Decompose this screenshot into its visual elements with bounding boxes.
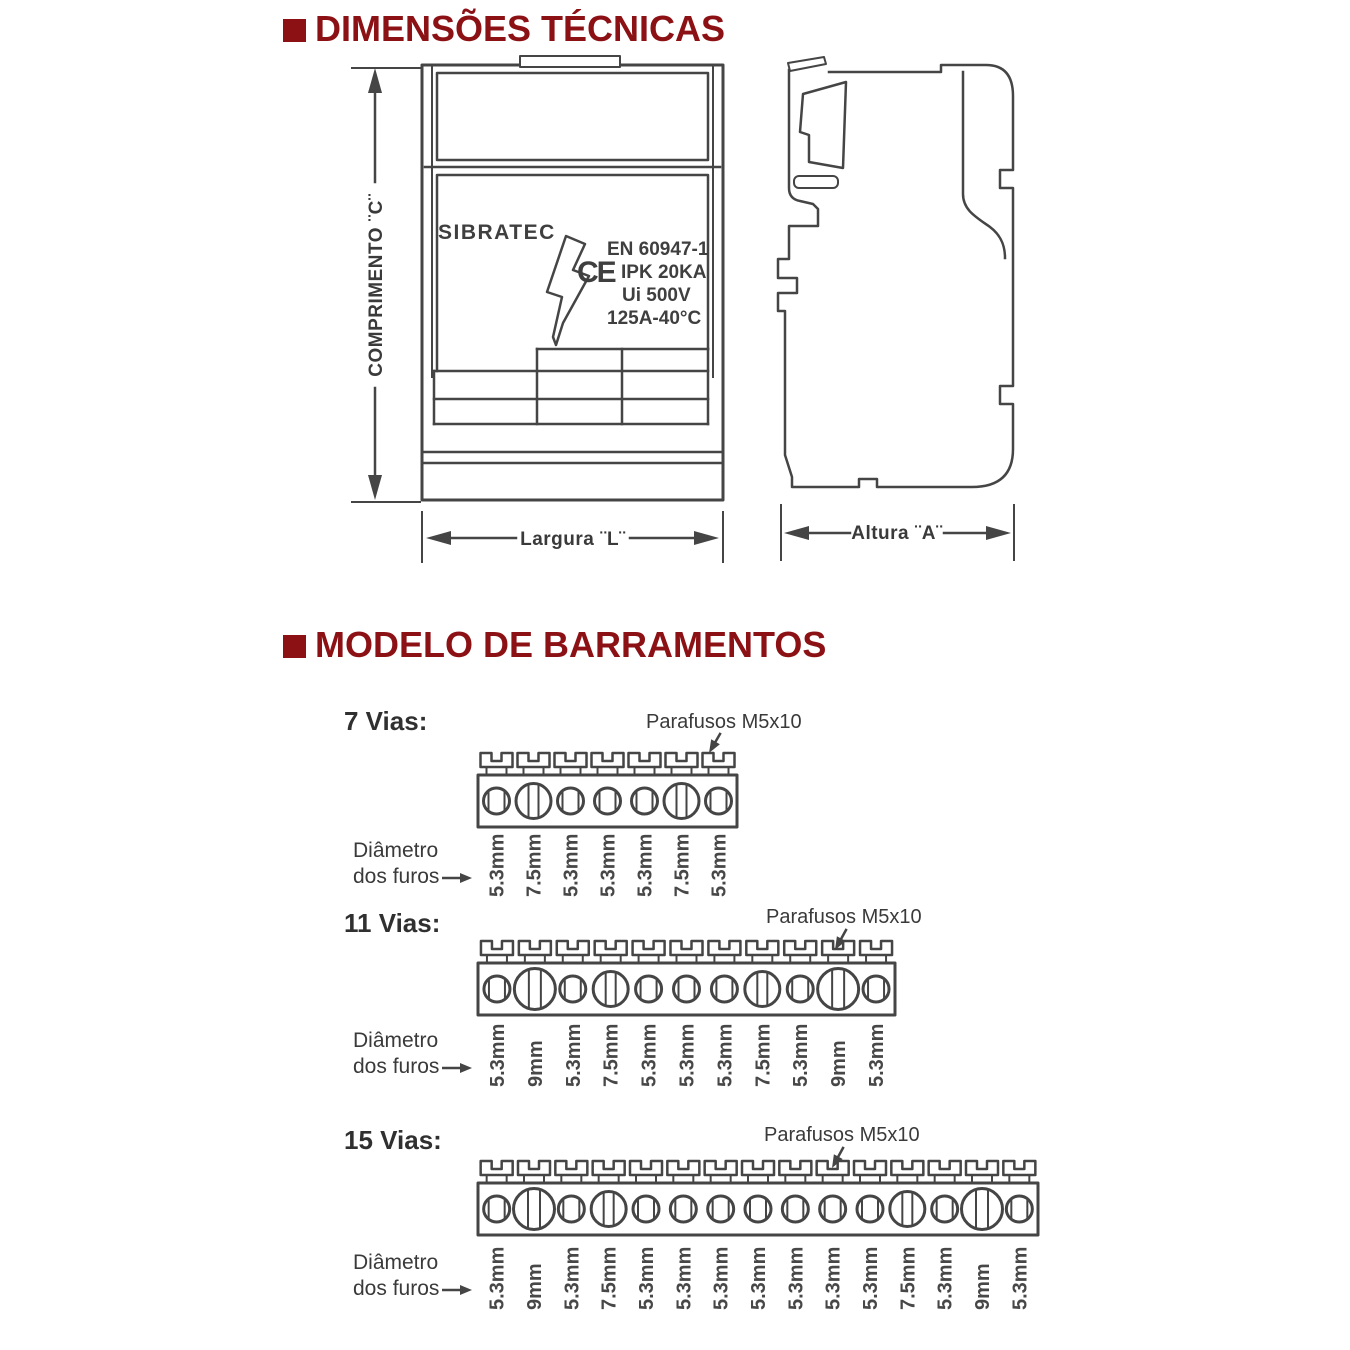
section-header-dimensions: DIMENSÕES TÉCNICAS xyxy=(283,8,725,50)
screw-head-icon xyxy=(481,1161,513,1175)
arrow-down-icon xyxy=(368,475,382,500)
hole-diameter-label: 5.3mm xyxy=(561,1247,583,1310)
hole-diameter-label: 7.5mm xyxy=(599,1247,621,1310)
hole-diameter-label: 5.3mm xyxy=(823,1247,845,1310)
busbar-hole xyxy=(863,976,889,1002)
diameter-caption-line2: dos furos xyxy=(353,1054,472,1080)
busbar-hole xyxy=(670,1196,696,1222)
screw-head-icon xyxy=(854,1161,886,1175)
hole-diameter-label: 5.3mm xyxy=(598,834,620,897)
diameter-caption: Diâmetro dos furos xyxy=(353,838,472,890)
screw-head-icon xyxy=(742,1161,774,1175)
section-title-barramentos: MODELO DE BARRAMENTOS xyxy=(315,624,826,666)
hole-diameter-label: 5.3mm xyxy=(711,1247,733,1310)
hole-diameter-label: 5.3mm xyxy=(673,1247,695,1310)
sibratec-logo: SIBRATEC xyxy=(438,221,556,245)
screw-head-icon xyxy=(703,753,735,767)
hole-diameter-label: 5.3mm xyxy=(709,834,731,897)
screw-head-icon xyxy=(779,1161,811,1175)
busbar-hole xyxy=(591,1192,626,1227)
hole-diameter-label: 5.3mm xyxy=(790,1024,812,1087)
busbar-hole xyxy=(857,1196,883,1222)
screw-head-icon xyxy=(667,1161,699,1175)
hole-diameter-label: 5.3mm xyxy=(635,834,657,897)
diameter-caption: Diâmetro dos furos xyxy=(353,1250,472,1302)
side-inner-wall-curve xyxy=(963,72,1005,258)
front-terminal-grid xyxy=(434,349,708,424)
arrow-right-icon xyxy=(442,870,472,884)
model-label-11-vias: 11 Vias: xyxy=(344,908,440,939)
hole-diameter-label: 5.3mm xyxy=(714,1024,736,1087)
hole-diameter-label: 7.5mm xyxy=(897,1247,919,1310)
hole-diameter-label: 9mm xyxy=(525,1040,547,1087)
screws-label: Parafusos M5x10 xyxy=(766,906,922,929)
hole-diameter-label: 7.5mm xyxy=(752,1024,774,1087)
hole-diameter-label: 5.3mm xyxy=(860,1247,882,1310)
bullet-square-icon xyxy=(283,635,306,658)
arrow-right-icon xyxy=(442,1060,472,1074)
screw-head-icon xyxy=(708,941,740,955)
cert-line: IPK 20KA xyxy=(607,261,708,284)
certification-text: EN 60947-1 IPK 20KA Ui 500V 125A-40°C xyxy=(607,238,708,330)
screw-head-icon xyxy=(746,941,778,955)
busbar-hole xyxy=(820,1196,846,1222)
screw-head-icon xyxy=(633,941,665,955)
cert-line: 125A-40°C xyxy=(607,307,708,330)
screw-head-icon xyxy=(555,753,587,767)
hole-diameter-label: 9mm xyxy=(524,1263,546,1310)
busbar-15-vias: 5.3mm9mm5.3mm7.5mm5.3mm5.3mm5.3mm5.3mm5.… xyxy=(478,1148,1038,1310)
busbar-hole xyxy=(484,1196,510,1222)
section-title-dimensions: DIMENSÕES TÉCNICAS xyxy=(315,8,725,50)
busbar-hole xyxy=(514,969,555,1010)
screw-head-icon xyxy=(1003,1161,1035,1175)
screw-head-icon xyxy=(518,1161,550,1175)
arrow-right-icon xyxy=(694,531,719,545)
busbar-hole xyxy=(932,1196,958,1222)
screw-head-icon xyxy=(481,941,513,955)
screw-head-icon xyxy=(671,941,703,955)
arrow-down-left-icon xyxy=(709,739,720,753)
screw-head-icon xyxy=(966,1161,998,1175)
hole-diameter-label: 5.3mm xyxy=(487,834,509,897)
busbar-hole xyxy=(636,976,662,1002)
screw-head-icon xyxy=(929,1161,961,1175)
dimension-label-largura: Largura ¨L¨ xyxy=(520,529,626,550)
hole-diameter-label: 5.3mm xyxy=(677,1024,699,1087)
cert-line: Ui 500V xyxy=(607,284,708,307)
screws-label: Parafusos M5x10 xyxy=(764,1124,920,1147)
screw-head-icon xyxy=(593,1161,625,1175)
dimension-label-altura: Altura ¨A¨ xyxy=(851,523,943,544)
busbar-hole xyxy=(1006,1196,1032,1222)
hole-diameter-label: 5.3mm xyxy=(487,1247,509,1310)
busbar-hole xyxy=(745,972,780,1007)
screw-head-icon xyxy=(519,941,551,955)
dimension-label-comprimento: COMPRIMENTO ¨C¨ xyxy=(366,193,387,377)
busbar-hole xyxy=(818,969,859,1010)
dimension-largura: Largura ¨L¨ xyxy=(422,512,723,562)
diameter-caption-line1: Diâmetro xyxy=(353,1250,472,1276)
hole-diameter-label: 9mm xyxy=(972,1263,994,1310)
busbar-hole xyxy=(782,1196,808,1222)
hole-diameter-label: 7.5mm xyxy=(672,834,694,897)
busbar-hole xyxy=(558,1196,584,1222)
hole-diameter-label: 5.3mm xyxy=(639,1024,661,1087)
section-header-barramentos: MODELO DE BARRAMENTOS xyxy=(283,624,826,666)
hole-diameter-label: 5.3mm xyxy=(563,1024,585,1087)
screw-head-icon xyxy=(817,1161,849,1175)
hole-diameter-label: 5.3mm xyxy=(748,1247,770,1310)
diameter-caption-line1: Diâmetro xyxy=(353,838,472,864)
hole-diameter-label: 5.3mm xyxy=(785,1247,807,1310)
busbar-hole xyxy=(674,976,700,1002)
hole-diameter-label: 5.3mm xyxy=(1009,1247,1031,1310)
screw-head-icon xyxy=(592,753,624,767)
diameter-caption-line1: Diâmetro xyxy=(353,1028,472,1054)
hole-diameter-label: 7.5mm xyxy=(524,834,546,897)
busbar-hole xyxy=(706,788,732,814)
dimension-altura: Altura ¨A¨ xyxy=(781,505,1014,560)
busbar-hole xyxy=(711,976,737,1002)
arrow-left-icon xyxy=(784,526,809,540)
busbar-hole xyxy=(745,1196,771,1222)
screw-head-icon xyxy=(595,941,627,955)
busbar-hole xyxy=(593,972,628,1007)
arrow-right-icon xyxy=(442,1282,472,1296)
busbar-hole xyxy=(633,1196,659,1222)
diameter-caption: Diâmetro dos furos xyxy=(353,1028,472,1080)
screw-head-icon xyxy=(555,1161,587,1175)
busbar-hole xyxy=(558,788,584,814)
hole-diameter-label: 5.3mm xyxy=(561,834,583,897)
screw-head-icon xyxy=(481,753,513,767)
diagram-canvas: COMPRIMENTO ¨C¨ Largura ¨L¨ Altura ¨A¨ 5… xyxy=(0,0,1350,1350)
busbar-hole xyxy=(962,1189,1003,1230)
dimension-comprimento: COMPRIMENTO ¨C¨ xyxy=(352,68,420,502)
screw-head-icon xyxy=(557,941,589,955)
screw-head-icon xyxy=(518,753,550,767)
busbar-hole xyxy=(484,788,510,814)
busbar-hole xyxy=(516,784,551,819)
screws-label: Parafusos M5x10 xyxy=(646,711,802,734)
side-view-drawing xyxy=(778,57,1013,487)
cert-line: EN 60947-1 xyxy=(607,238,708,261)
bullet-square-icon xyxy=(283,19,306,42)
busbar-hole xyxy=(708,1196,734,1222)
arrow-up-icon xyxy=(368,68,382,93)
diameter-caption-line2: dos furos xyxy=(353,1276,472,1302)
lightning-bolt-icon xyxy=(547,236,589,345)
busbar-hole xyxy=(514,1189,555,1230)
model-label-7-vias: 7 Vias: xyxy=(344,706,427,737)
hole-diameter-label: 7.5mm xyxy=(601,1024,623,1087)
hole-diameter-label: 9mm xyxy=(828,1040,850,1087)
hole-diameter-label: 5.3mm xyxy=(636,1247,658,1310)
screw-head-icon xyxy=(705,1161,737,1175)
screw-head-icon xyxy=(784,941,816,955)
side-clip-lever xyxy=(800,82,846,168)
busbar-hole xyxy=(595,788,621,814)
busbar-11-vias: 5.3mm9mm5.3mm7.5mm5.3mm5.3mm5.3mm7.5mm5.… xyxy=(478,930,895,1087)
diameter-caption-line2: dos furos xyxy=(353,864,472,890)
busbar-hole xyxy=(560,976,586,1002)
busbar-hole xyxy=(484,976,510,1002)
busbar-hole xyxy=(890,1192,925,1227)
screw-head-icon xyxy=(891,1161,923,1175)
hole-diameter-label: 5.3mm xyxy=(935,1247,957,1310)
busbar-hole xyxy=(664,784,699,819)
hole-diameter-label: 5.3mm xyxy=(866,1024,888,1087)
datasheet-page: COMPRIMENTO ¨C¨ Largura ¨L¨ Altura ¨A¨ 5… xyxy=(0,0,1350,1350)
arrow-left-icon xyxy=(426,531,451,545)
side-clip-foot xyxy=(794,176,838,188)
screw-head-icon xyxy=(666,753,698,767)
front-top-panel xyxy=(437,73,708,160)
hole-diameter-label: 5.3mm xyxy=(487,1024,509,1087)
screw-head-icon xyxy=(860,941,892,955)
screw-head-icon xyxy=(629,753,661,767)
screw-head-icon xyxy=(630,1161,662,1175)
front-top-tab xyxy=(520,56,620,67)
side-din-clip-top xyxy=(788,57,826,71)
busbar-hole xyxy=(632,788,658,814)
busbar-7-vias: 5.3mm7.5mm5.3mm5.3mm5.3mm7.5mm5.3mm xyxy=(478,734,737,897)
busbar-hole xyxy=(787,976,813,1002)
arrow-right-icon xyxy=(986,526,1011,540)
model-label-15-vias: 15 Vias: xyxy=(344,1125,442,1156)
